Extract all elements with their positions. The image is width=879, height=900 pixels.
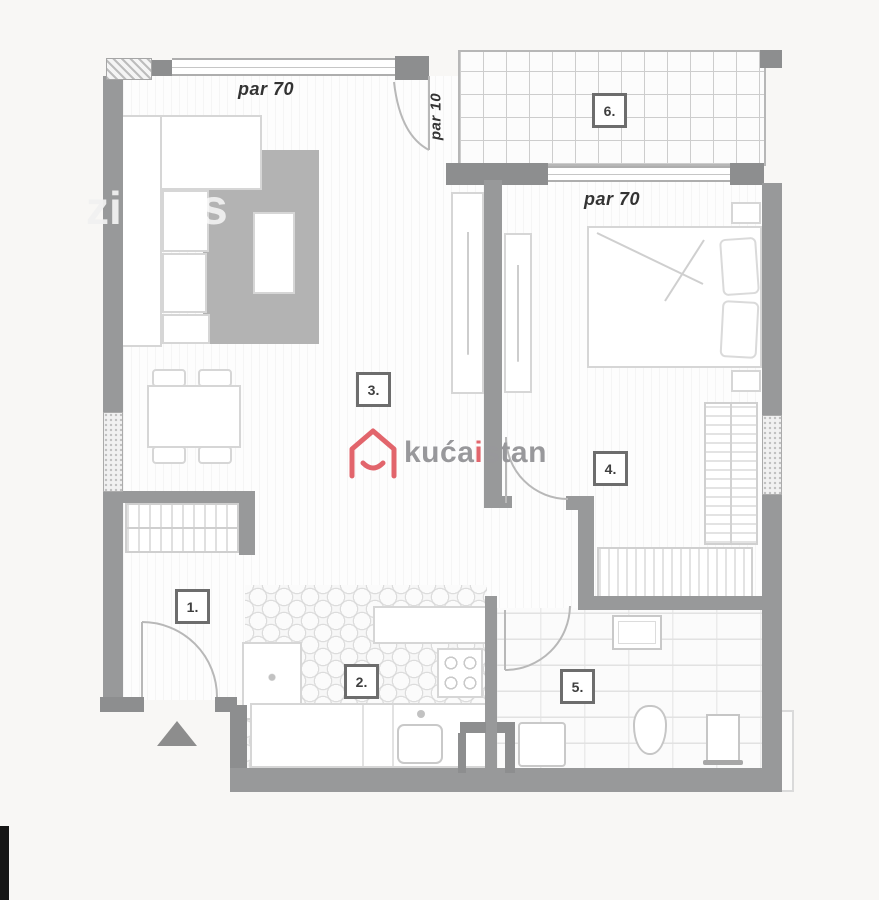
bathroom-sink <box>612 615 662 650</box>
sofa-cushion <box>162 190 209 252</box>
room-number: 2. <box>356 674 368 690</box>
parapet-annotation-bedroom: par 70 <box>584 189 640 210</box>
room-label-4: 4. <box>593 451 628 486</box>
washing-machine <box>706 714 740 762</box>
room-label-1: 1. <box>175 589 210 624</box>
bedroom-wardrobe-right <box>704 402 758 545</box>
wall <box>460 722 486 733</box>
kitchen-counter-lower <box>250 703 487 768</box>
window-left <box>103 412 123 492</box>
faucet-dot <box>417 710 425 718</box>
wardrobe-living-side <box>451 192 484 394</box>
nightstand <box>731 370 761 392</box>
room-label-3: 3. <box>356 372 391 407</box>
room-label-2: 2. <box>344 664 379 699</box>
shower-unit <box>518 722 566 767</box>
kucaistan-logo: kućaistan <box>348 427 547 479</box>
pillow <box>719 237 760 296</box>
wall <box>458 733 466 773</box>
bedroom-wardrobe-bottom <box>597 547 753 599</box>
wall <box>123 491 255 503</box>
parapet-annotation-top: par 70 <box>238 79 294 100</box>
wall <box>150 60 174 76</box>
wall <box>239 491 255 555</box>
room-number: 4. <box>605 461 617 477</box>
kitchen-counter-upper <box>373 606 487 644</box>
room-label-5: 5. <box>560 669 595 704</box>
parapet-annotation-terrace-door: par 10 <box>428 84 445 150</box>
wall <box>230 768 764 792</box>
wall <box>484 496 512 508</box>
dining-table <box>147 385 241 448</box>
window-right <box>762 415 782 495</box>
wall <box>762 495 782 792</box>
entrance-arrow-icon <box>157 721 197 746</box>
wall <box>762 183 782 415</box>
pillow <box>720 300 760 359</box>
coffee-table <box>253 212 295 294</box>
sofa-cushion <box>162 253 207 313</box>
house-smile-icon <box>348 427 398 479</box>
wall <box>760 50 782 68</box>
wall <box>485 596 497 770</box>
window-bedroom <box>548 166 730 182</box>
dining-chair <box>152 446 186 464</box>
wall <box>730 163 764 185</box>
hallway-closet <box>125 503 239 553</box>
room-number: 5. <box>572 679 584 695</box>
wall <box>395 56 429 80</box>
wall <box>497 722 515 733</box>
floor-plan-canvas: 1. 2. 3. 4. 5. 6. par 70 par 10 par 70 z… <box>0 0 879 900</box>
wall <box>100 697 144 712</box>
room-number: 3. <box>368 382 380 398</box>
wall <box>103 76 123 412</box>
wall <box>578 496 594 602</box>
wall <box>103 492 123 702</box>
cooktop <box>437 648 483 698</box>
small-marking <box>703 760 743 765</box>
sofa-cushion <box>162 314 210 344</box>
logo-accent: i <box>474 436 483 469</box>
wall <box>505 733 515 773</box>
room-number: 6. <box>604 103 616 119</box>
wall <box>578 596 764 610</box>
dining-chair <box>198 446 232 464</box>
wall-hatch-corner <box>106 58 152 80</box>
wardrobe-bedroom-side <box>504 233 532 393</box>
room-number: 1. <box>187 599 199 615</box>
logo-part1: kuća <box>404 436 474 469</box>
window-top <box>172 58 397 76</box>
logo-text: kućaistan <box>404 436 547 470</box>
screenshot-edge-bar <box>0 826 9 900</box>
nightstand <box>731 202 761 224</box>
room-label-6: 6. <box>592 93 627 128</box>
logo-part2: stan <box>483 436 547 469</box>
kitchen-sink <box>397 724 443 764</box>
